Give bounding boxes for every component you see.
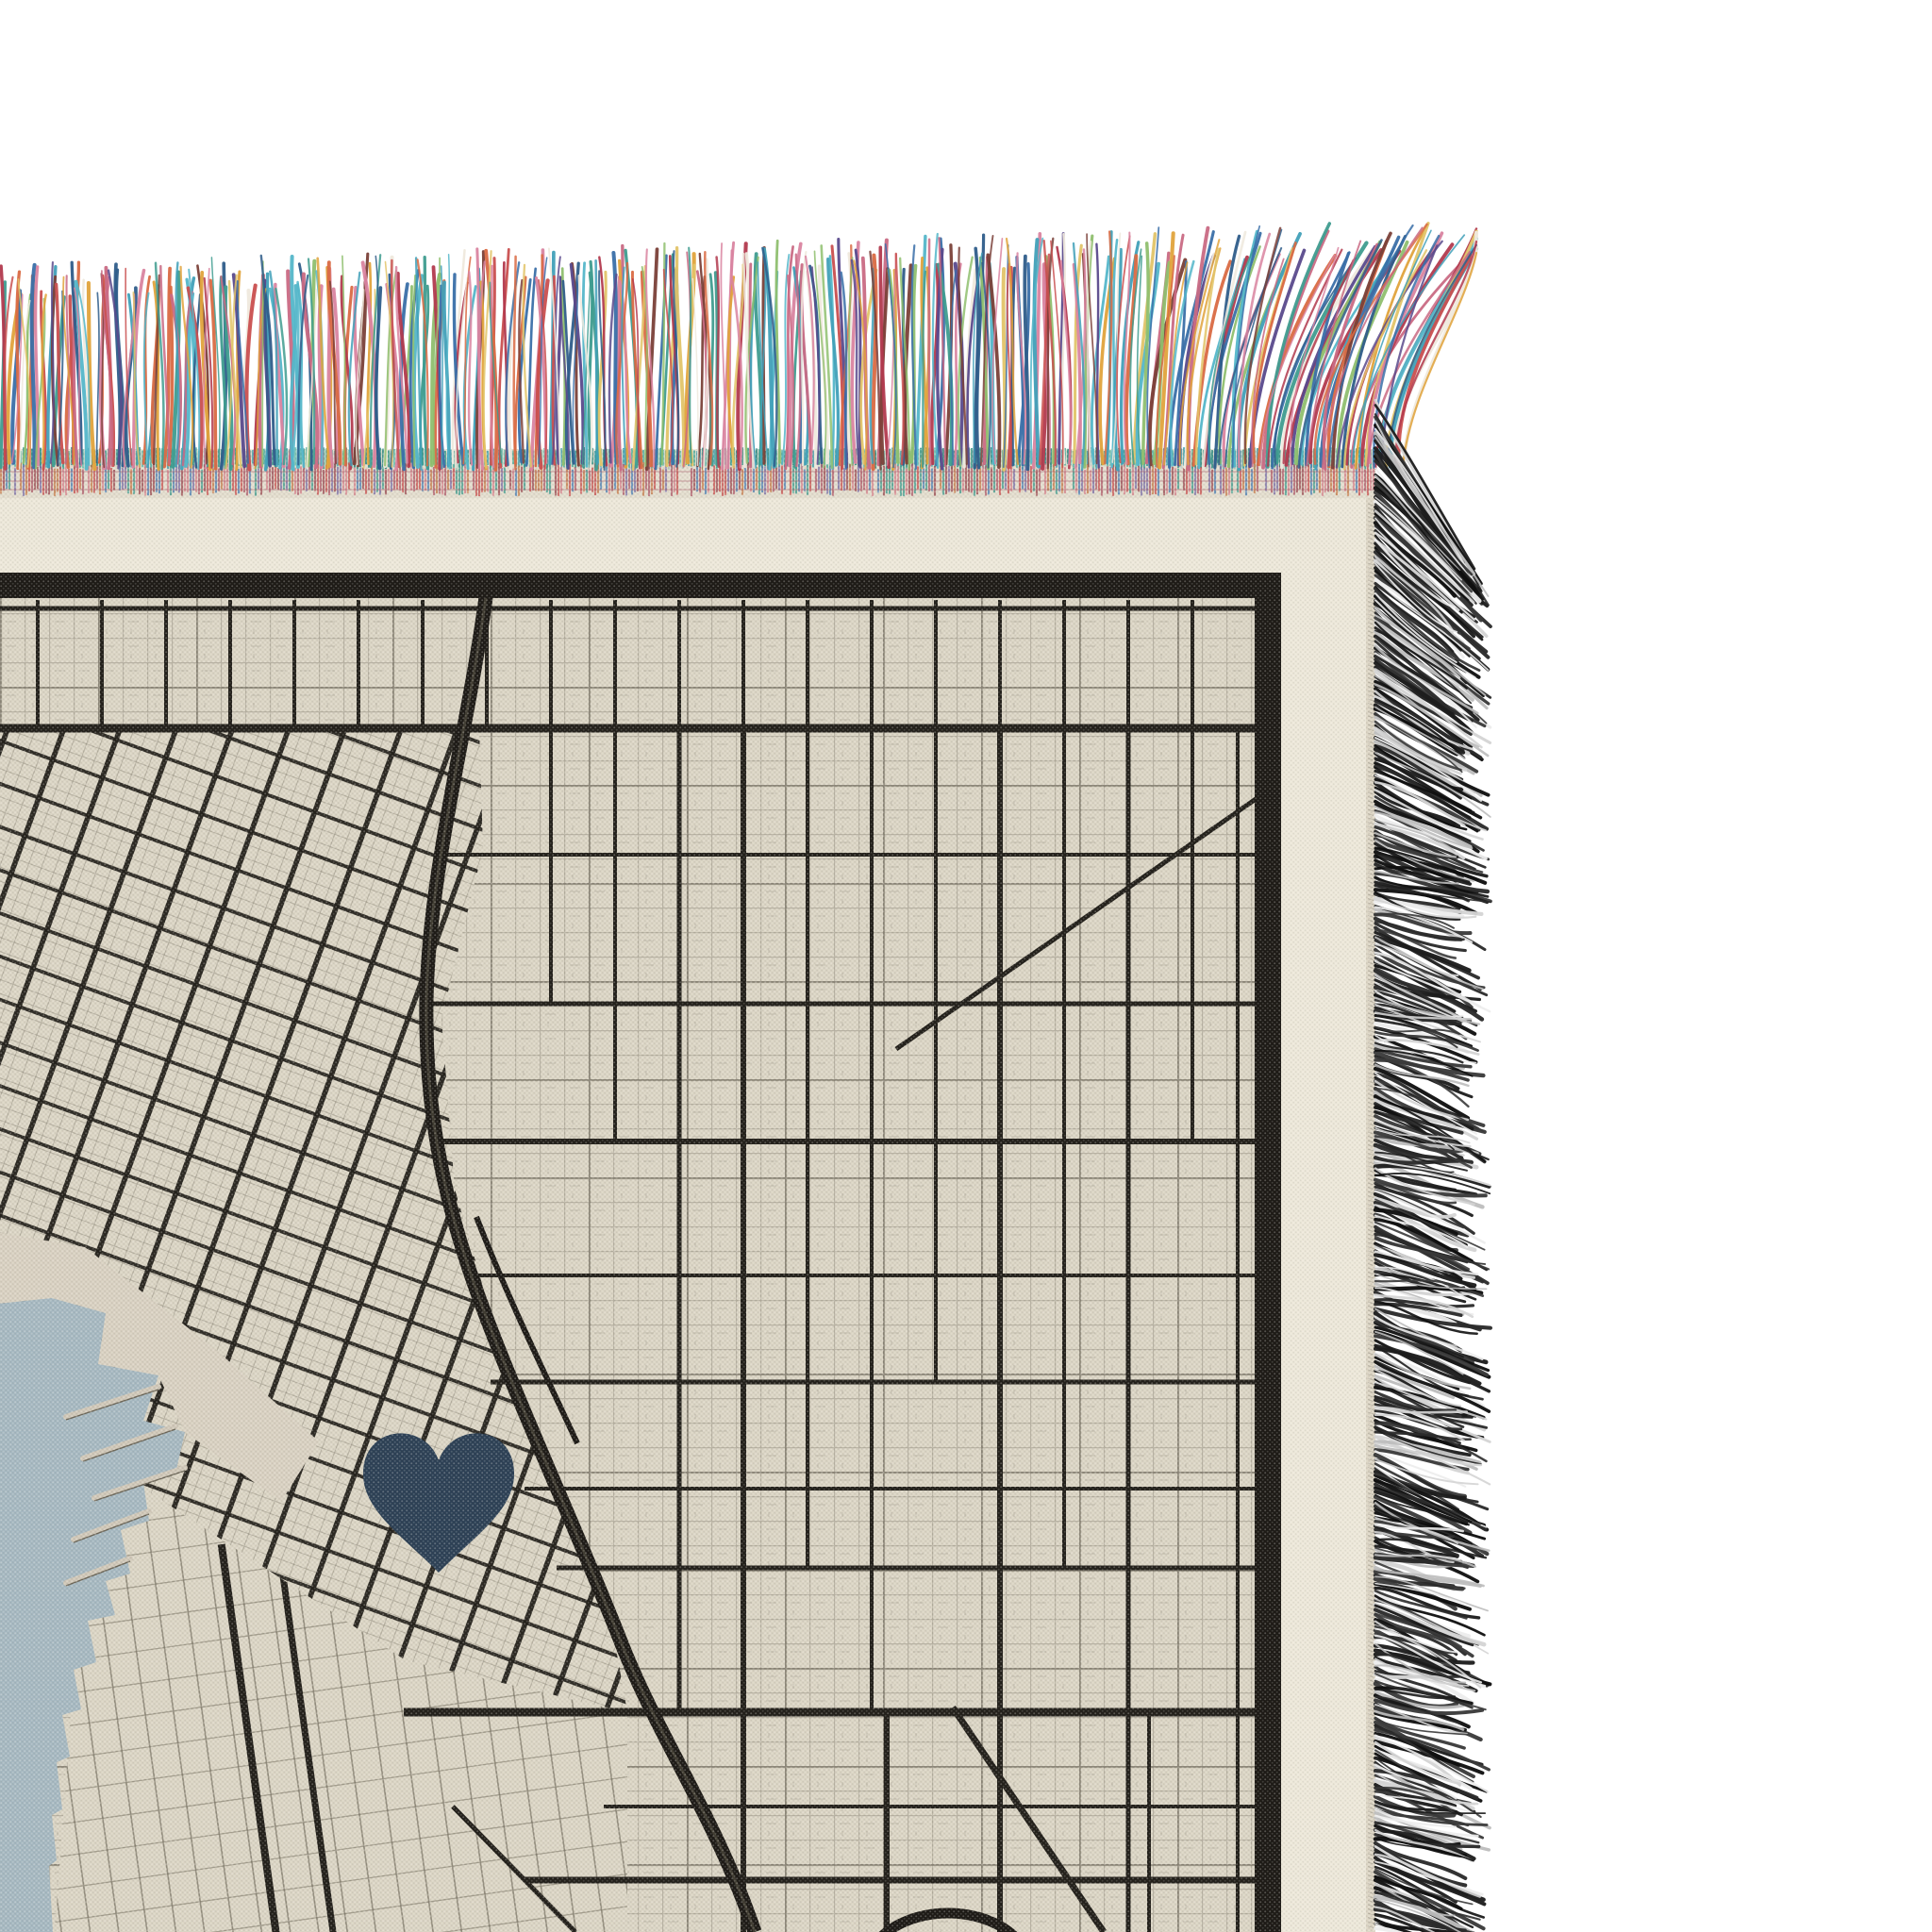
product-photo-canvas <box>0 0 1932 1932</box>
weave-texture <box>0 449 1375 1932</box>
